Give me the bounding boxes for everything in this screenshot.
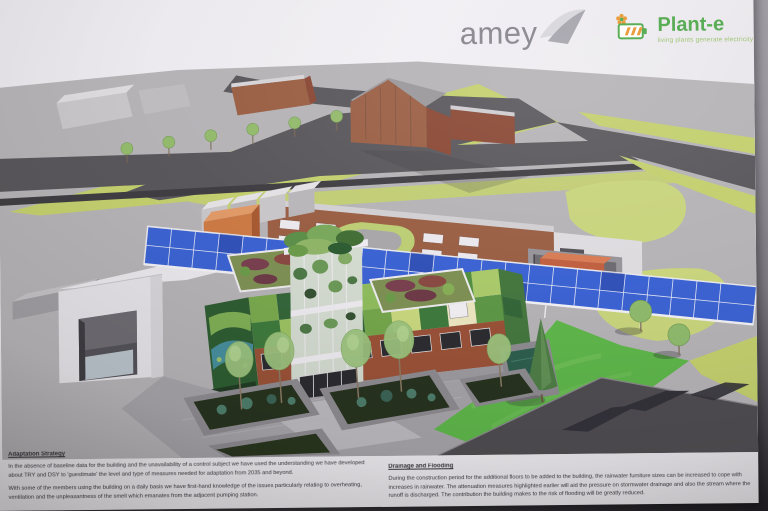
adaptation-paragraph-2: With some of the members using the build… [8, 481, 374, 502]
plante-logo-textblock: Plant-e living plants generate electrici… [657, 11, 753, 44]
drainage-heading: Drainage and Flooding [388, 460, 758, 470]
plante-logo: Plant-e living plants generate electrici… [613, 11, 753, 44]
amey-logo-text: amey [460, 17, 538, 49]
photo-frame: amey [0, 0, 768, 511]
plante-logo-text: Plant-e [657, 14, 753, 35]
poster-content: amey [0, 0, 759, 511]
drainage-section: Drainage and Flooding During the constru… [388, 460, 758, 506]
site-rendering [0, 54, 758, 460]
adaptation-section: Adaptation Strategy In the absence of ba… [8, 448, 375, 507]
drainage-paragraph-1: During the construction period for the a… [388, 471, 758, 501]
plante-logo-tagline: living plants generate electricity [658, 36, 754, 44]
amey-logo: amey [459, 8, 587, 53]
presentation-board: amey [0, 0, 759, 511]
plante-battery-icon [613, 12, 653, 44]
amey-swoosh-icon [537, 8, 587, 53]
adaptation-paragraph-1: In the absence of baseline data for the … [8, 459, 374, 480]
